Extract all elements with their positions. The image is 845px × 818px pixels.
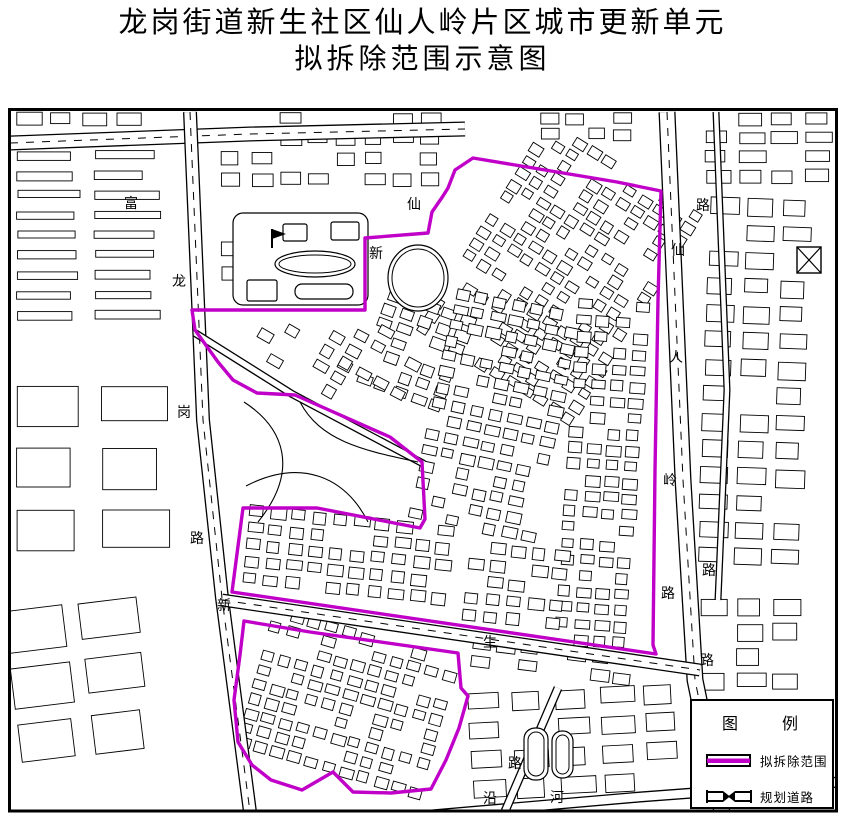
road-label: 路 xyxy=(696,197,710,213)
road-label: 人 xyxy=(669,349,683,365)
road-label: 生 xyxy=(483,634,497,650)
road-label: 富 xyxy=(124,195,138,211)
road-label: 路 xyxy=(508,755,522,771)
legend-item-planned-road: 规划道路 xyxy=(706,787,832,806)
legend-item-demolition: 拟拆除范围 xyxy=(706,751,832,770)
road-label: 龙 xyxy=(172,273,186,289)
road-label: 路 xyxy=(700,652,714,668)
legend-title: 图 例 xyxy=(702,710,832,734)
road-label: 路 xyxy=(702,562,716,578)
planned-road-icon xyxy=(706,789,752,805)
road-label: 沿 xyxy=(483,790,497,806)
demolition-boundary-icon xyxy=(706,753,752,769)
road-label: 路 xyxy=(661,585,675,601)
legend-label-demolition: 拟拆除范围 xyxy=(760,751,828,770)
road-label: 新 xyxy=(369,245,383,261)
road-label: 河 xyxy=(550,789,564,805)
legend-box: 图 例 拟拆除范围 规划道路 xyxy=(690,699,834,809)
road-label: 路 xyxy=(190,530,204,546)
road-label: 仙 xyxy=(407,196,421,212)
legend-label-planned-road: 规划道路 xyxy=(760,787,814,806)
map-svg: 富龙岗路仙新仙人岭路路路路新生路沿河 xyxy=(0,0,845,818)
road-label: 岭 xyxy=(663,472,677,488)
road-label: 岗 xyxy=(177,404,191,420)
road-label: 仙 xyxy=(671,242,685,258)
road-label: 新 xyxy=(217,597,231,613)
